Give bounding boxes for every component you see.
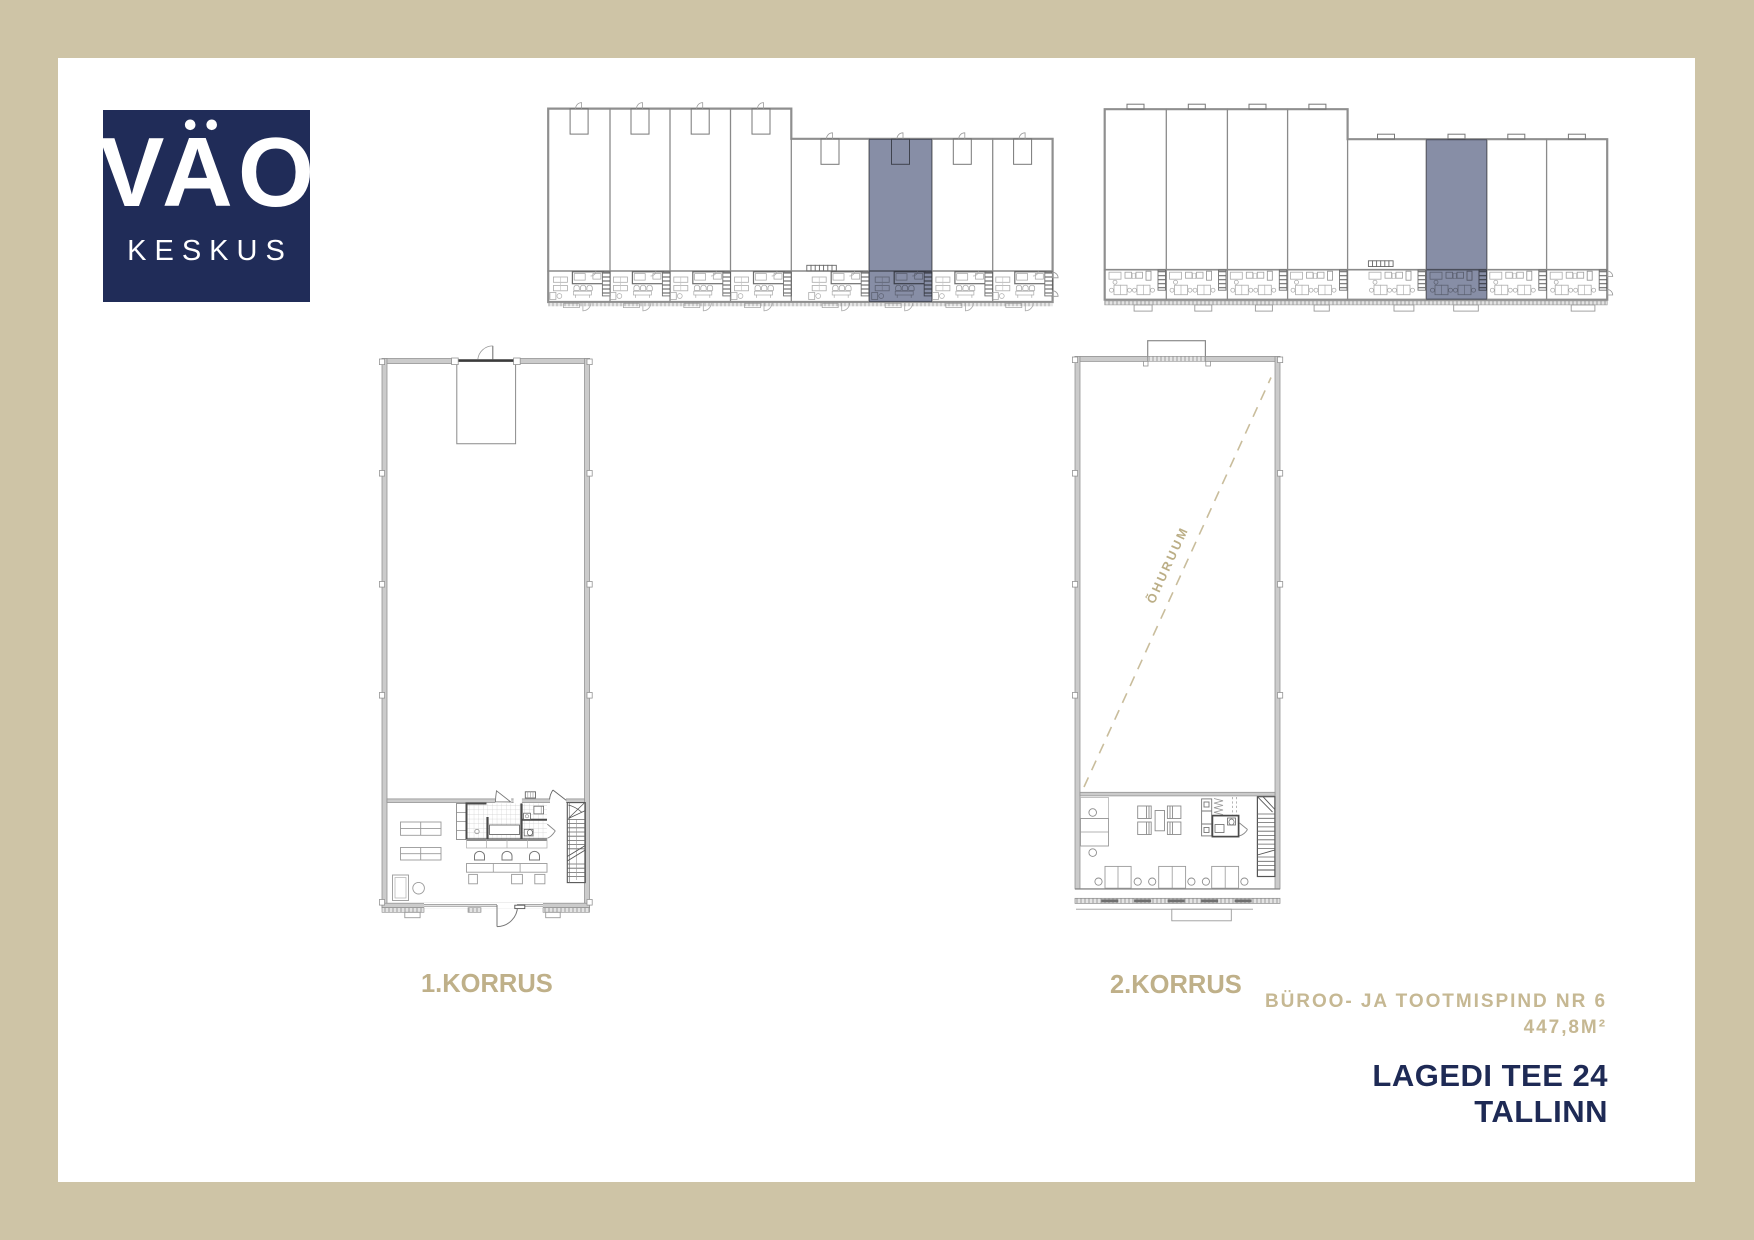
svg-text:1.KORRUS: 1.KORRUS (421, 970, 553, 998)
svg-text:BÜROO- JA TOOTMISPIND NR 6: BÜROO- JA TOOTMISPIND NR 6 (1265, 991, 1607, 1012)
svg-text:LAGEDI TEE 24: LAGEDI TEE 24 (1372, 1058, 1608, 1093)
svg-text:TALLINN: TALLINN (1474, 1094, 1608, 1129)
svg-text:VAO: VAO (99, 117, 319, 227)
svg-text:KESKUS: KESKUS (127, 235, 293, 267)
svg-text:447,8M²: 447,8M² (1524, 1017, 1607, 1038)
svg-text:2.KORRUS: 2.KORRUS (1110, 971, 1242, 999)
